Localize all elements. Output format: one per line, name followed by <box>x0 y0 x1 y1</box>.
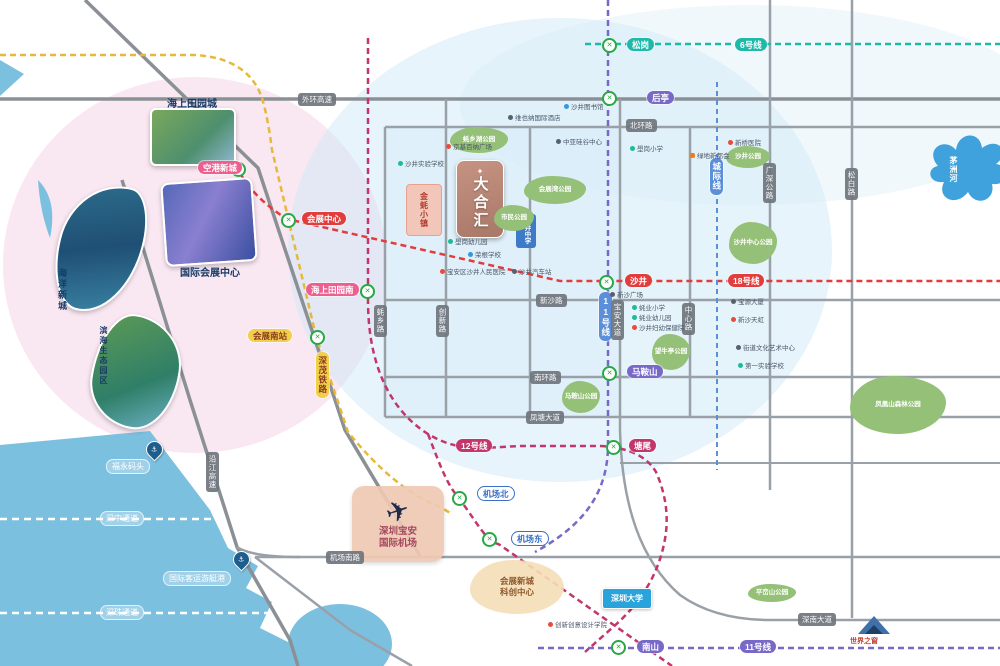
water-label: 深中通道 <box>100 511 144 526</box>
road-label: 蚝乡路 <box>374 305 387 337</box>
station-pill: 18号线 <box>728 274 764 287</box>
station-pill: 机场东 <box>511 531 549 546</box>
expo-new-town-blob: 会展新城 科创中心 <box>470 560 564 614</box>
poi-label: 荣根学校 <box>475 249 501 259</box>
poi-item: 沙井汽车站 <box>512 266 552 276</box>
poi-label: 蚝业小学 <box>639 302 665 312</box>
airport-name-line2: 国际机场 <box>379 538 417 550</box>
metro-station-icon: ✕ <box>602 38 617 53</box>
poi-label: 中亚硅谷中心 <box>563 136 602 146</box>
oyster-town-block: 金蚝小镇 <box>406 184 442 236</box>
metro-station-icon: ✕ <box>452 491 467 506</box>
poi-item: 壆岗小学 <box>630 143 663 153</box>
poi-label: 创新创意设计学院 <box>555 619 607 629</box>
poi-item: 宝安区沙井人民医院 <box>440 266 506 276</box>
metro-station-icon: ✕ <box>360 284 375 299</box>
road-label: 凤塘大道 <box>526 411 564 424</box>
station-pill: 马鞍山 <box>627 365 663 378</box>
station-pill: 南山 <box>637 640 664 653</box>
world-window-label: 世界之窗 <box>850 636 878 646</box>
metro-station-icon: ✕ <box>602 366 617 381</box>
poi-label: 宝安区沙井人民医院 <box>447 266 506 276</box>
river-label: 茅洲河 <box>948 156 959 183</box>
park-label: 凤凰山森林公园 <box>875 401 921 409</box>
park-label: 马鞍山公园 <box>565 393 598 401</box>
park-label: 沙井公园 <box>735 153 761 161</box>
poi-item: 第一实验学校 <box>738 360 784 370</box>
station-pill: 会展南站 <box>248 329 292 342</box>
station-pill: 塘尾 <box>629 439 656 452</box>
poi-item: 壆岗幼儿园 <box>448 236 488 246</box>
poi-label: 宝源大厦 <box>738 296 764 306</box>
station-pill: 会展中心 <box>302 212 346 225</box>
park-label: 平峦山公园 <box>756 589 789 597</box>
expo-line2: 科创中心 <box>500 587 534 598</box>
road-label: 外环高速 <box>298 93 336 106</box>
park-label: 沙井中心公园 <box>734 239 773 247</box>
water-label: 深珠通道 <box>100 605 144 620</box>
road-label: 机场南路 <box>326 551 364 564</box>
road-label: 北环路 <box>626 119 657 132</box>
poi-item: 沙井图书馆 <box>564 101 604 111</box>
metro-station-icon: ✕ <box>310 330 325 345</box>
airport-block: ✈ 深圳宝安 国际机场 <box>352 486 444 562</box>
poi-label: 新桥医院 <box>735 137 761 147</box>
poi-item: 绿地新都会 <box>690 150 730 160</box>
station-pill: 11号线 <box>740 640 776 653</box>
poi-item: 中亚硅谷中心 <box>556 136 602 146</box>
station-pill: 松岗 <box>627 38 654 51</box>
station-pill: 12号线 <box>456 439 492 452</box>
seaside-countryside-label: 海上田园城 <box>150 95 234 110</box>
ocean-new-city-label: 海洋新城 <box>56 268 69 312</box>
poi-label: 街道文化艺术中心 <box>743 342 795 352</box>
project-logo: ✦ 大合汇 <box>456 160 504 238</box>
metro-station-icon: ✕ <box>611 640 626 655</box>
metro-station-icon: ✕ <box>482 532 497 547</box>
water-label: 国际客运游艇港 <box>163 571 231 586</box>
road-label: 沿江高速 <box>206 452 219 492</box>
poi-item: 沙井实验学校 <box>398 158 444 168</box>
poi-label: 新沙广场 <box>617 289 643 299</box>
sparkle-icon: ✦ <box>477 168 484 176</box>
poi-label: 绿地新都会 <box>697 150 730 160</box>
poi-label: 沙井妇幼保健院 <box>639 322 685 332</box>
road-label: 松白路 <box>845 168 858 200</box>
poi-label: 沙井实验学校 <box>405 158 444 168</box>
road-label: 南环路 <box>530 371 561 384</box>
coast-wedge-top <box>0 60 24 96</box>
station-pill: 空港新城 <box>198 161 242 174</box>
water-label: 福永码头 <box>106 459 150 474</box>
map-canvas: 海上田园城 国际会展中心 海洋新城 滨海生态园区 ✦ 大合汇 沙井中学 金蚝小镇… <box>0 0 1000 666</box>
road-label: 广深公路 <box>763 163 776 203</box>
poi-label: 维也纳国际酒店 <box>515 112 561 122</box>
poi-item: 宝源大厦 <box>731 296 764 306</box>
poi-item: 沙井妇幼保健院 <box>632 322 685 332</box>
poi-item: 维也纳国际酒店 <box>508 112 561 122</box>
poi-label: 新沙天虹 <box>738 314 764 324</box>
river-splash <box>930 135 1000 200</box>
park-label: 市民公园 <box>501 214 527 222</box>
seaside-countryside-photo <box>150 108 236 166</box>
metro-station-icon: ✕ <box>599 275 614 290</box>
exhibition-center-label: 国际会展中心 <box>166 264 254 279</box>
poi-label: 第一实验学校 <box>745 360 784 370</box>
road-label: 新沙路 <box>536 294 567 307</box>
expo-line1: 会展新城 <box>500 576 534 587</box>
station-pill: 6号线 <box>735 38 767 51</box>
exhibition-center-photo <box>160 177 258 267</box>
poi-label: 京基百纳广场 <box>453 141 492 151</box>
world-window-icon <box>858 616 890 634</box>
station-pill: 沙井 <box>625 274 652 287</box>
poi-item: 京基百纳广场 <box>446 141 492 151</box>
coastal-eco-park-label: 滨海生态园区 <box>98 326 109 386</box>
metro-station-icon: ✕ <box>606 440 621 455</box>
poi-item: 新沙天虹 <box>731 314 764 324</box>
station-pill: 后亭 <box>647 91 674 104</box>
project-name: 大合汇 <box>470 176 491 230</box>
poi-label: 沙井图书馆 <box>571 101 604 111</box>
station-pill: 海上田园南 <box>306 283 359 296</box>
road-label: 深南大道 <box>798 613 836 626</box>
poi-label: 蚝业幼儿园 <box>639 312 672 322</box>
plane-icon: ✈ <box>383 495 414 529</box>
poi-item: 新桥医院 <box>728 137 761 147</box>
poi-item: 街道文化艺术中心 <box>736 342 795 352</box>
poi-item: 蚝业小学 <box>632 302 665 312</box>
station-pill: 机场北 <box>477 486 515 501</box>
poi-label: 壆岗小学 <box>637 143 663 153</box>
university-badge: 深圳大学 <box>602 588 652 609</box>
poi-item: 荣根学校 <box>468 249 501 259</box>
metro-station-icon: ✕ <box>602 91 617 106</box>
poi-label: 沙井汽车站 <box>519 266 552 276</box>
poi-item: 新沙广场 <box>610 289 643 299</box>
road-label: 创新路 <box>436 305 449 337</box>
park-label: 会展湾公园 <box>539 186 572 194</box>
station-pill: 深茂铁路 <box>316 352 329 398</box>
station-pill: 城际线 <box>710 158 723 195</box>
park-label: 望牛亭公园 <box>655 348 688 356</box>
sea-area <box>0 431 306 666</box>
bay-inlet <box>288 604 392 666</box>
road-label: 宝安大道 <box>611 300 624 340</box>
metro-station-icon: ✕ <box>281 213 296 228</box>
poi-item: 蚝业幼儿园 <box>632 312 672 322</box>
poi-item: 创新创意设计学院 <box>548 619 607 629</box>
poi-label: 壆岗幼儿园 <box>455 236 488 246</box>
